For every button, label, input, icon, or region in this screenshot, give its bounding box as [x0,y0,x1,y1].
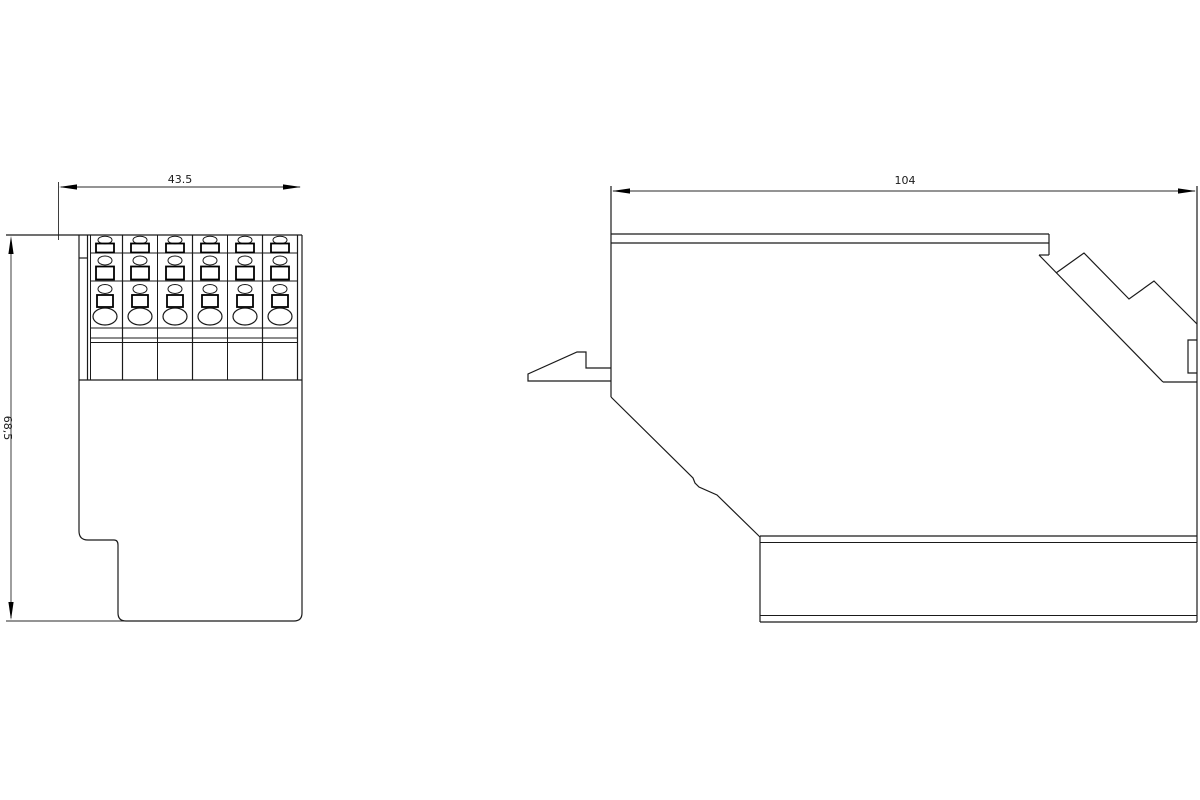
side-view: 104 [528,174,1197,622]
ramp-zigzag-edge [1056,253,1197,324]
screw-terminal-ellipse [268,308,292,325]
terminal-columns [93,235,292,380]
terminal-oval-2 [133,256,147,265]
arrowhead-left-icon [59,184,77,189]
terminal-oval-3 [273,285,287,294]
right-edge-notch [1188,340,1197,373]
arrowhead-left-icon [612,188,630,193]
arrowhead-down-icon [8,602,13,620]
front-width-dimension: 43.5 [59,173,302,240]
terminal-column-4 [198,235,228,380]
terminal-slot-square-2 [236,267,254,280]
terminal-oval-2 [98,256,112,265]
terminal-slot-square-3 [132,295,148,307]
terminal-oval-3 [98,285,112,294]
side-bottom-box [760,536,1197,622]
side-width-dimension: 104 [611,174,1196,234]
terminal-slot-square-2 [201,267,219,280]
technical-drawing-canvas: 68,5 43.5 [0,0,1200,800]
terminal-oval-3 [238,285,252,294]
terminal-slot-square-1 [166,244,184,253]
screw-terminal-ellipse [93,308,117,325]
side-body [528,186,1197,622]
terminal-slot-square-2 [271,267,289,280]
front-body [6,235,302,621]
terminal-slot-square-1 [201,244,219,253]
terminal-oval-3 [133,285,147,294]
front-height-label: 68,5 [1,416,14,441]
terminal-slot-square-3 [97,295,113,307]
terminal-slot-square-3 [167,295,183,307]
front-width-label: 43.5 [168,173,193,186]
screw-terminal-ellipse [163,308,187,325]
terminal-column-1 [93,235,123,380]
terminal-slot-square-2 [96,267,114,280]
ramp-lower-diagonal [1039,255,1163,382]
terminal-oval-2 [168,256,182,265]
terminal-block [88,235,298,380]
front-body-outline [79,235,302,621]
screw-terminal-ellipse [128,308,152,325]
terminal-slot-square-1 [236,244,254,253]
terminal-slot-square-1 [271,244,289,253]
screw-terminal-ellipse [198,308,222,325]
terminal-oval-3 [168,285,182,294]
din-rail-clip [528,352,611,381]
terminal-oval-2 [203,256,217,265]
terminal-column-3 [163,235,193,380]
arrowhead-right-icon [1178,188,1196,193]
terminal-column-5 [233,235,263,380]
arrowhead-right-icon [283,184,301,189]
side-width-label: 104 [895,174,916,187]
terminal-slot-square-3 [272,295,288,307]
terminal-slot-square-2 [166,267,184,280]
terminal-slot-square-1 [131,244,149,253]
terminal-slot-square-3 [202,295,218,307]
terminal-oval-2 [273,256,287,265]
arrowhead-up-icon [8,236,13,254]
side-chamfer-diagonal [611,397,760,537]
terminal-slot-square-1 [96,244,114,253]
terminal-slot-square-3 [237,295,253,307]
terminal-oval-3 [203,285,217,294]
screw-terminal-ellipse [233,308,257,325]
terminal-oval-2 [238,256,252,265]
terminal-column-2 [128,235,158,380]
dimension-drawing: 68,5 43.5 [0,0,1200,800]
front-view: 68,5 43.5 [1,173,302,621]
terminal-slot-square-2 [131,267,149,280]
